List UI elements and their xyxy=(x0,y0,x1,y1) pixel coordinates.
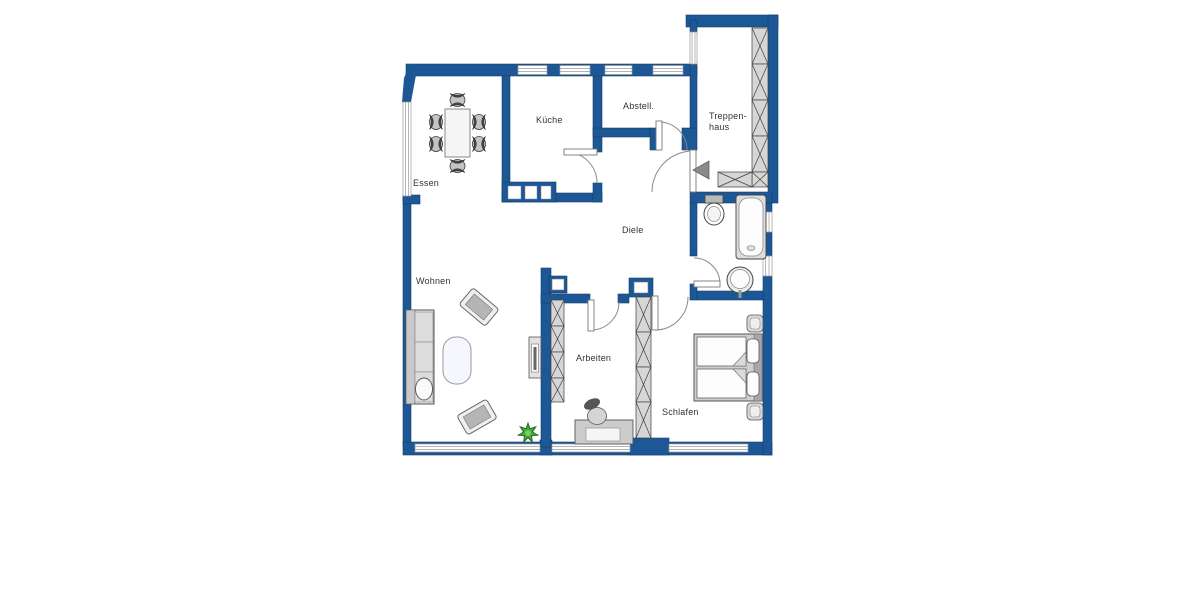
wall-bad-bottom xyxy=(697,291,763,300)
armchair xyxy=(459,288,499,327)
staircase xyxy=(718,28,768,187)
door-bad xyxy=(694,258,720,287)
duct-arbeiten-opening xyxy=(552,279,564,290)
dining-chair xyxy=(473,137,486,152)
window-kueche-2 xyxy=(560,66,590,75)
label-schlafen: Schlafen xyxy=(662,407,699,417)
bedroom-set xyxy=(694,315,763,420)
dining-table xyxy=(445,109,470,157)
hatch-arbeiten-wall xyxy=(551,300,564,402)
tap xyxy=(739,290,742,298)
hatch-schlafen-wall xyxy=(636,297,651,438)
kueche-block-opening xyxy=(541,186,551,199)
label-abstell: Abstell. xyxy=(623,101,654,111)
nightstand xyxy=(747,315,763,332)
kueche-block-opening xyxy=(525,186,537,199)
door-kueche xyxy=(564,149,597,183)
office-set xyxy=(575,396,633,444)
wall-bad-left-upper xyxy=(690,203,697,256)
kueche-block-opening xyxy=(508,186,521,199)
door-schlafen xyxy=(652,296,688,330)
window-kueche-1 xyxy=(518,66,547,75)
living-set xyxy=(406,288,541,442)
tv xyxy=(534,347,537,370)
dining-chair xyxy=(430,115,443,130)
window-wohnen xyxy=(415,444,540,452)
window-abstell-1 xyxy=(605,66,632,75)
wall-arbeiten-top-right xyxy=(618,294,629,303)
wall-right-c xyxy=(763,276,772,455)
wall-arbeiten-top-left xyxy=(541,294,590,303)
drain xyxy=(747,246,755,251)
wall-treppenhaus-left-b xyxy=(690,64,697,128)
bathtub xyxy=(736,195,766,259)
window-schlafen xyxy=(669,444,748,452)
label-diele: Diele xyxy=(622,225,644,235)
wall-chamfer xyxy=(402,64,418,102)
wall-abstell-post xyxy=(682,128,697,150)
dining-set xyxy=(430,94,486,173)
double-bed xyxy=(694,334,762,401)
label-treppenhaus-1: Treppen- xyxy=(709,111,747,121)
wall-left-pier xyxy=(403,195,420,204)
label-arbeiten: Arbeiten xyxy=(576,353,611,363)
desk xyxy=(575,420,633,444)
label-treppenhaus-2: haus xyxy=(709,122,730,132)
label-essen: Essen xyxy=(413,178,439,188)
wall-kueche-right-lower xyxy=(593,183,602,202)
floor-plan-page: Essen Küche Abstell. Treppen- haus Diele… xyxy=(0,0,1200,600)
nightstand xyxy=(747,403,763,420)
window-abstell-2 xyxy=(653,66,683,75)
window-essen xyxy=(403,102,411,196)
wall-bottom-pier-2 xyxy=(629,438,669,455)
tv-board xyxy=(529,337,541,378)
pillow xyxy=(747,372,759,396)
dining-chair xyxy=(450,94,465,107)
window-treppenhaus xyxy=(690,32,697,64)
wall-treppenhaus-top xyxy=(686,15,778,27)
wall-treppenhaus-right xyxy=(768,15,778,203)
pillow xyxy=(747,339,759,363)
dining-chair xyxy=(473,115,486,130)
wall-kueche-right-upper xyxy=(593,76,602,152)
armchair xyxy=(457,399,497,435)
plant-center xyxy=(525,430,531,436)
label-kueche: Küche xyxy=(536,115,563,125)
wall-treppenhaus-left-a xyxy=(690,20,697,32)
door-arbeiten xyxy=(588,300,619,331)
sofa xyxy=(406,310,434,404)
floor-plan: Essen Küche Abstell. Treppen- haus Diele… xyxy=(0,0,1200,600)
dining-chair xyxy=(450,160,465,173)
duct-schlafen-opening xyxy=(634,282,648,293)
plant xyxy=(518,423,538,442)
door-entrance xyxy=(652,150,709,192)
wall-abstell-bottom xyxy=(593,128,650,137)
dining-chair xyxy=(430,137,443,152)
toilet xyxy=(704,195,724,225)
window-arbeiten xyxy=(552,444,630,452)
label-wohnen: Wohnen xyxy=(416,276,451,286)
coffee-table xyxy=(443,337,471,384)
